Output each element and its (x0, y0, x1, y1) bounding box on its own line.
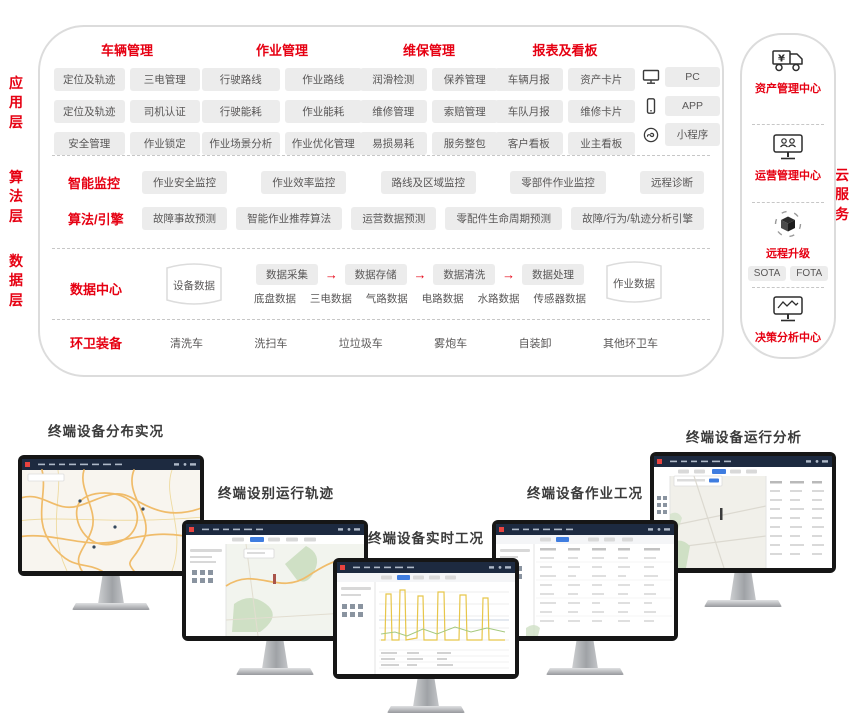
algo-chip: 作业效率监控 (261, 171, 346, 194)
cloud-section-operation: 运营管理中心 (742, 132, 834, 183)
arrow-right-icon: → (502, 267, 515, 282)
algo-chip: 路线及区域监控 (381, 171, 477, 194)
feature-chip: 业主看板 (568, 132, 636, 155)
svg-text:¥: ¥ (778, 54, 785, 65)
data-type-label: 水路数据 (478, 291, 520, 306)
monitor-distribution (18, 455, 204, 610)
algo-row-title: 智能监控 (68, 173, 142, 192)
data-type-label: 传感器数据 (533, 291, 586, 306)
data-type-label: 底盘数据 (254, 291, 296, 306)
feature-chip: 作业锁定 (130, 132, 201, 155)
chip-grid: 润滑检测保养管理维修管理索赔管理易损易耗服务整包 (360, 68, 498, 155)
feature-chip: 作业场景分析 (202, 132, 280, 155)
feature-chip: 行驶路线 (202, 68, 280, 91)
feature-chip: 车队月报 (495, 100, 563, 123)
group-title: 作业管理 (202, 40, 362, 59)
feature-chip: 润滑检测 (360, 68, 427, 91)
algo-chip: 零部件作业监控 (510, 171, 606, 194)
feature-chip: 作业优化管理 (285, 132, 363, 155)
group-title: 维保管理 (360, 40, 498, 59)
feature-chip: 维修卡片 (568, 100, 636, 123)
miniprogram-icon (642, 127, 660, 143)
feature-chip: 作业能耗 (285, 100, 363, 123)
pipeline-step: 数据处理 (522, 264, 584, 285)
platform-app: APP (642, 96, 720, 115)
monitor-base (546, 668, 624, 675)
group-title: 报表及看板 (495, 40, 635, 59)
equipment-item: 垃垃圾车 (339, 335, 383, 351)
arrow-right-icon: → (325, 267, 338, 282)
algo-chip: 智能作业推荐算法 (236, 207, 342, 230)
feature-chip: 定位及轨迹 (54, 68, 125, 91)
algo-row-engine: 算法/引擎 故障事故预测智能作业推荐算法运营数据预测零配件生命周期预测故障/行为… (68, 207, 704, 230)
monitor-base (236, 668, 314, 675)
algo-chip: 故障/行为/轨迹分析引擎 (571, 207, 704, 230)
monitor-stand (730, 573, 756, 601)
divider-algo-data (52, 248, 710, 249)
feature-chip: 易损易耗 (360, 132, 427, 155)
monitor-stand (262, 641, 288, 669)
pc-icon (642, 69, 660, 85)
feature-chip: 司机认证 (130, 100, 201, 123)
pipeline-step: 数据存储 (345, 264, 407, 285)
monitor-stand (572, 641, 598, 669)
cloud-section-title: 资产管理中心 (755, 80, 821, 96)
monitor-base (387, 706, 465, 713)
algo-chip: 故障事故预测 (142, 207, 227, 230)
cloud-divider (752, 124, 824, 125)
cloud-section-decision: 决策分析中心 (742, 294, 834, 345)
monitor-users-icon (770, 132, 806, 162)
platform-list: PC APP 小程序 (642, 67, 720, 144)
data-type-label: 三电数据 (310, 291, 352, 306)
layer-label-cloud: 云服务 (834, 166, 850, 224)
feature-chip: 安全管理 (54, 132, 125, 155)
chip-grid: 定位及轨迹三电管理定位及轨迹司机认证安全管理作业锁定 (54, 68, 200, 155)
ota-chip-fota: FOTA (790, 266, 828, 281)
group-report-dashboard: 报表及看板 车辆月报资产卡片车队月报维修卡片客户看板业主看板 (495, 40, 635, 155)
algo-chip: 作业安全监控 (142, 171, 227, 194)
cloud-divider (752, 287, 824, 288)
ota-chip-sota: SOTA (748, 266, 786, 281)
group-title: 车辆管理 (54, 40, 200, 59)
platform-miniprogram: 小程序 (642, 125, 720, 144)
feature-chip: 客户看板 (495, 132, 563, 155)
monitor-chart-icon (770, 294, 806, 324)
feature-chip: 服务整包 (432, 132, 499, 155)
device-data-store: 设备数据 (162, 258, 226, 310)
pipeline-step: 数据清洗 (433, 264, 495, 285)
feature-chip: 作业路线 (285, 68, 363, 91)
monitor-label-trajectory: 终端设别运行轨迹 (218, 482, 334, 502)
monitor-bezel (18, 455, 204, 576)
monitor-screen-map-table (654, 456, 832, 568)
monitor-label-analysis: 终端设备运行分析 (686, 426, 802, 446)
monitor-base (72, 603, 150, 610)
cloud-section-asset: ¥ 资产管理中心 (742, 45, 834, 96)
equipment-title: 环卫装备 (70, 333, 170, 352)
monitor-label-distribution: 终端设备分布实况 (48, 420, 164, 440)
monitor-screen-table (496, 524, 674, 636)
pipeline-step: 数据采集 (256, 264, 318, 285)
platform-pc: PC (642, 67, 720, 86)
work-data-store: 作业数据 (602, 256, 666, 308)
monitor-work (492, 520, 678, 675)
equipment-item: 自装卸 (519, 335, 552, 351)
feature-chip: 车辆月报 (495, 68, 563, 91)
arrow-right-icon: → (413, 267, 426, 282)
algo-chip: 远程诊断 (640, 171, 704, 194)
monitor-stand (413, 679, 439, 707)
platform-label: PC (665, 67, 720, 87)
monitor-screen-chart (337, 562, 515, 674)
divider-data-equip (52, 319, 710, 320)
ota-cube-icon (770, 208, 806, 240)
chip-grid: 车辆月报资产卡片车队月报维修卡片客户看板业主看板 (495, 68, 635, 155)
data-center-title: 数据中心 (70, 279, 122, 298)
feature-chip: 资产卡片 (568, 68, 636, 91)
data-pipeline: 数据采集 → 数据存储 → 数据清洗 → 数据处理 (256, 264, 584, 285)
equipment-item: 雾炮车 (434, 335, 467, 351)
monitor-realtime (333, 558, 519, 713)
layer-label-app: 应用层 (8, 74, 24, 132)
cloud-section-title: 运营管理中心 (755, 167, 821, 183)
group-vehicle-mgmt: 车辆管理 定位及轨迹三电管理定位及轨迹司机认证安全管理作业锁定 (54, 40, 200, 155)
monitor-label-work: 终端设备作业工况 (527, 482, 643, 502)
algo-chips: 作业安全监控作业效率监控路线及区域监控零部件作业监控远程诊断 (142, 171, 704, 194)
monitor-base (704, 600, 782, 607)
feature-chip: 行驶能耗 (202, 100, 280, 123)
architecture-box: 车辆管理 定位及轨迹三电管理定位及轨迹司机认证安全管理作业锁定 作业管理 行驶路… (38, 25, 724, 377)
cloud-section-title: 远程升级 (766, 245, 810, 261)
truck-yen-icon: ¥ (770, 45, 806, 75)
page: 应用层 算法层 数据层 云服务 车辆管理 定位及轨迹三电管理定位及轨迹司机认证安… (0, 0, 851, 715)
chip-grid: 行驶路线作业路线行驶能耗作业能耗作业场景分析作业优化管理 (202, 68, 362, 155)
group-operation-mgmt: 作业管理 行驶路线作业路线行驶能耗作业能耗作业场景分析作业优化管理 (202, 40, 362, 155)
cloud-section-ota: 远程升级 SOTA FOTA (742, 208, 834, 281)
divider-app-algo (52, 155, 710, 156)
monitor-stand (98, 576, 124, 604)
layer-label-data: 数据层 (8, 252, 24, 310)
algo-chip: 零配件生命周期预测 (445, 207, 562, 230)
algo-chip: 运营数据预测 (351, 207, 436, 230)
platform-label: APP (665, 96, 720, 116)
equipment-items: 清洗车洗扫车垃垃圾车雾炮车自装卸其他环卫车 (170, 335, 658, 351)
algo-row-title: 算法/引擎 (68, 209, 142, 228)
algo-row-monitoring: 智能监控 作业安全监控作业效率监控路线及区域监控零部件作业监控远程诊断 (68, 171, 704, 194)
feature-chip: 三电管理 (130, 68, 201, 91)
cloud-services-box: ¥ 资产管理中心 运营管理中心 (740, 33, 836, 359)
platform-label: 小程序 (665, 123, 720, 146)
equipment-item: 清洗车 (170, 335, 203, 351)
equipment-item: 其他环卫车 (603, 335, 658, 351)
feature-chip: 保养管理 (432, 68, 499, 91)
store-label: 设备数据 (162, 278, 226, 293)
cloud-section-title: 决策分析中心 (755, 329, 821, 345)
algo-chips: 故障事故预测智能作业推荐算法运营数据预测零配件生命周期预测故障/行为/轨迹分析引… (142, 207, 704, 230)
data-type-label: 电路数据 (422, 291, 464, 306)
feature-chip: 索赔管理 (432, 100, 499, 123)
cloud-divider (752, 202, 824, 203)
monitor-label-realtime: 终端设备实时工况 (368, 527, 484, 547)
monitor-screen-map-full (22, 459, 200, 571)
monitor-bezel (492, 520, 678, 641)
data-type-label: 气路数据 (366, 291, 408, 306)
store-label: 作业数据 (602, 276, 666, 291)
layer-label-algorithm: 算法层 (8, 168, 24, 226)
ota-chips: SOTA FOTA (748, 266, 828, 281)
phone-icon (642, 98, 660, 114)
equipment-item: 洗扫车 (254, 335, 287, 351)
equipment-row: 环卫装备 清洗车洗扫车垃垃圾车雾炮车自装卸其他环卫车 (70, 333, 698, 352)
group-maintenance-mgmt: 维保管理 润滑检测保养管理维修管理索赔管理易损易耗服务整包 (360, 40, 498, 155)
monitor-bezel (333, 558, 519, 679)
data-type-list: 底盘数据三电数据气路数据电路数据水路数据传感器数据 (254, 291, 586, 306)
feature-chip: 定位及轨迹 (54, 100, 125, 123)
feature-chip: 维修管理 (360, 100, 427, 123)
